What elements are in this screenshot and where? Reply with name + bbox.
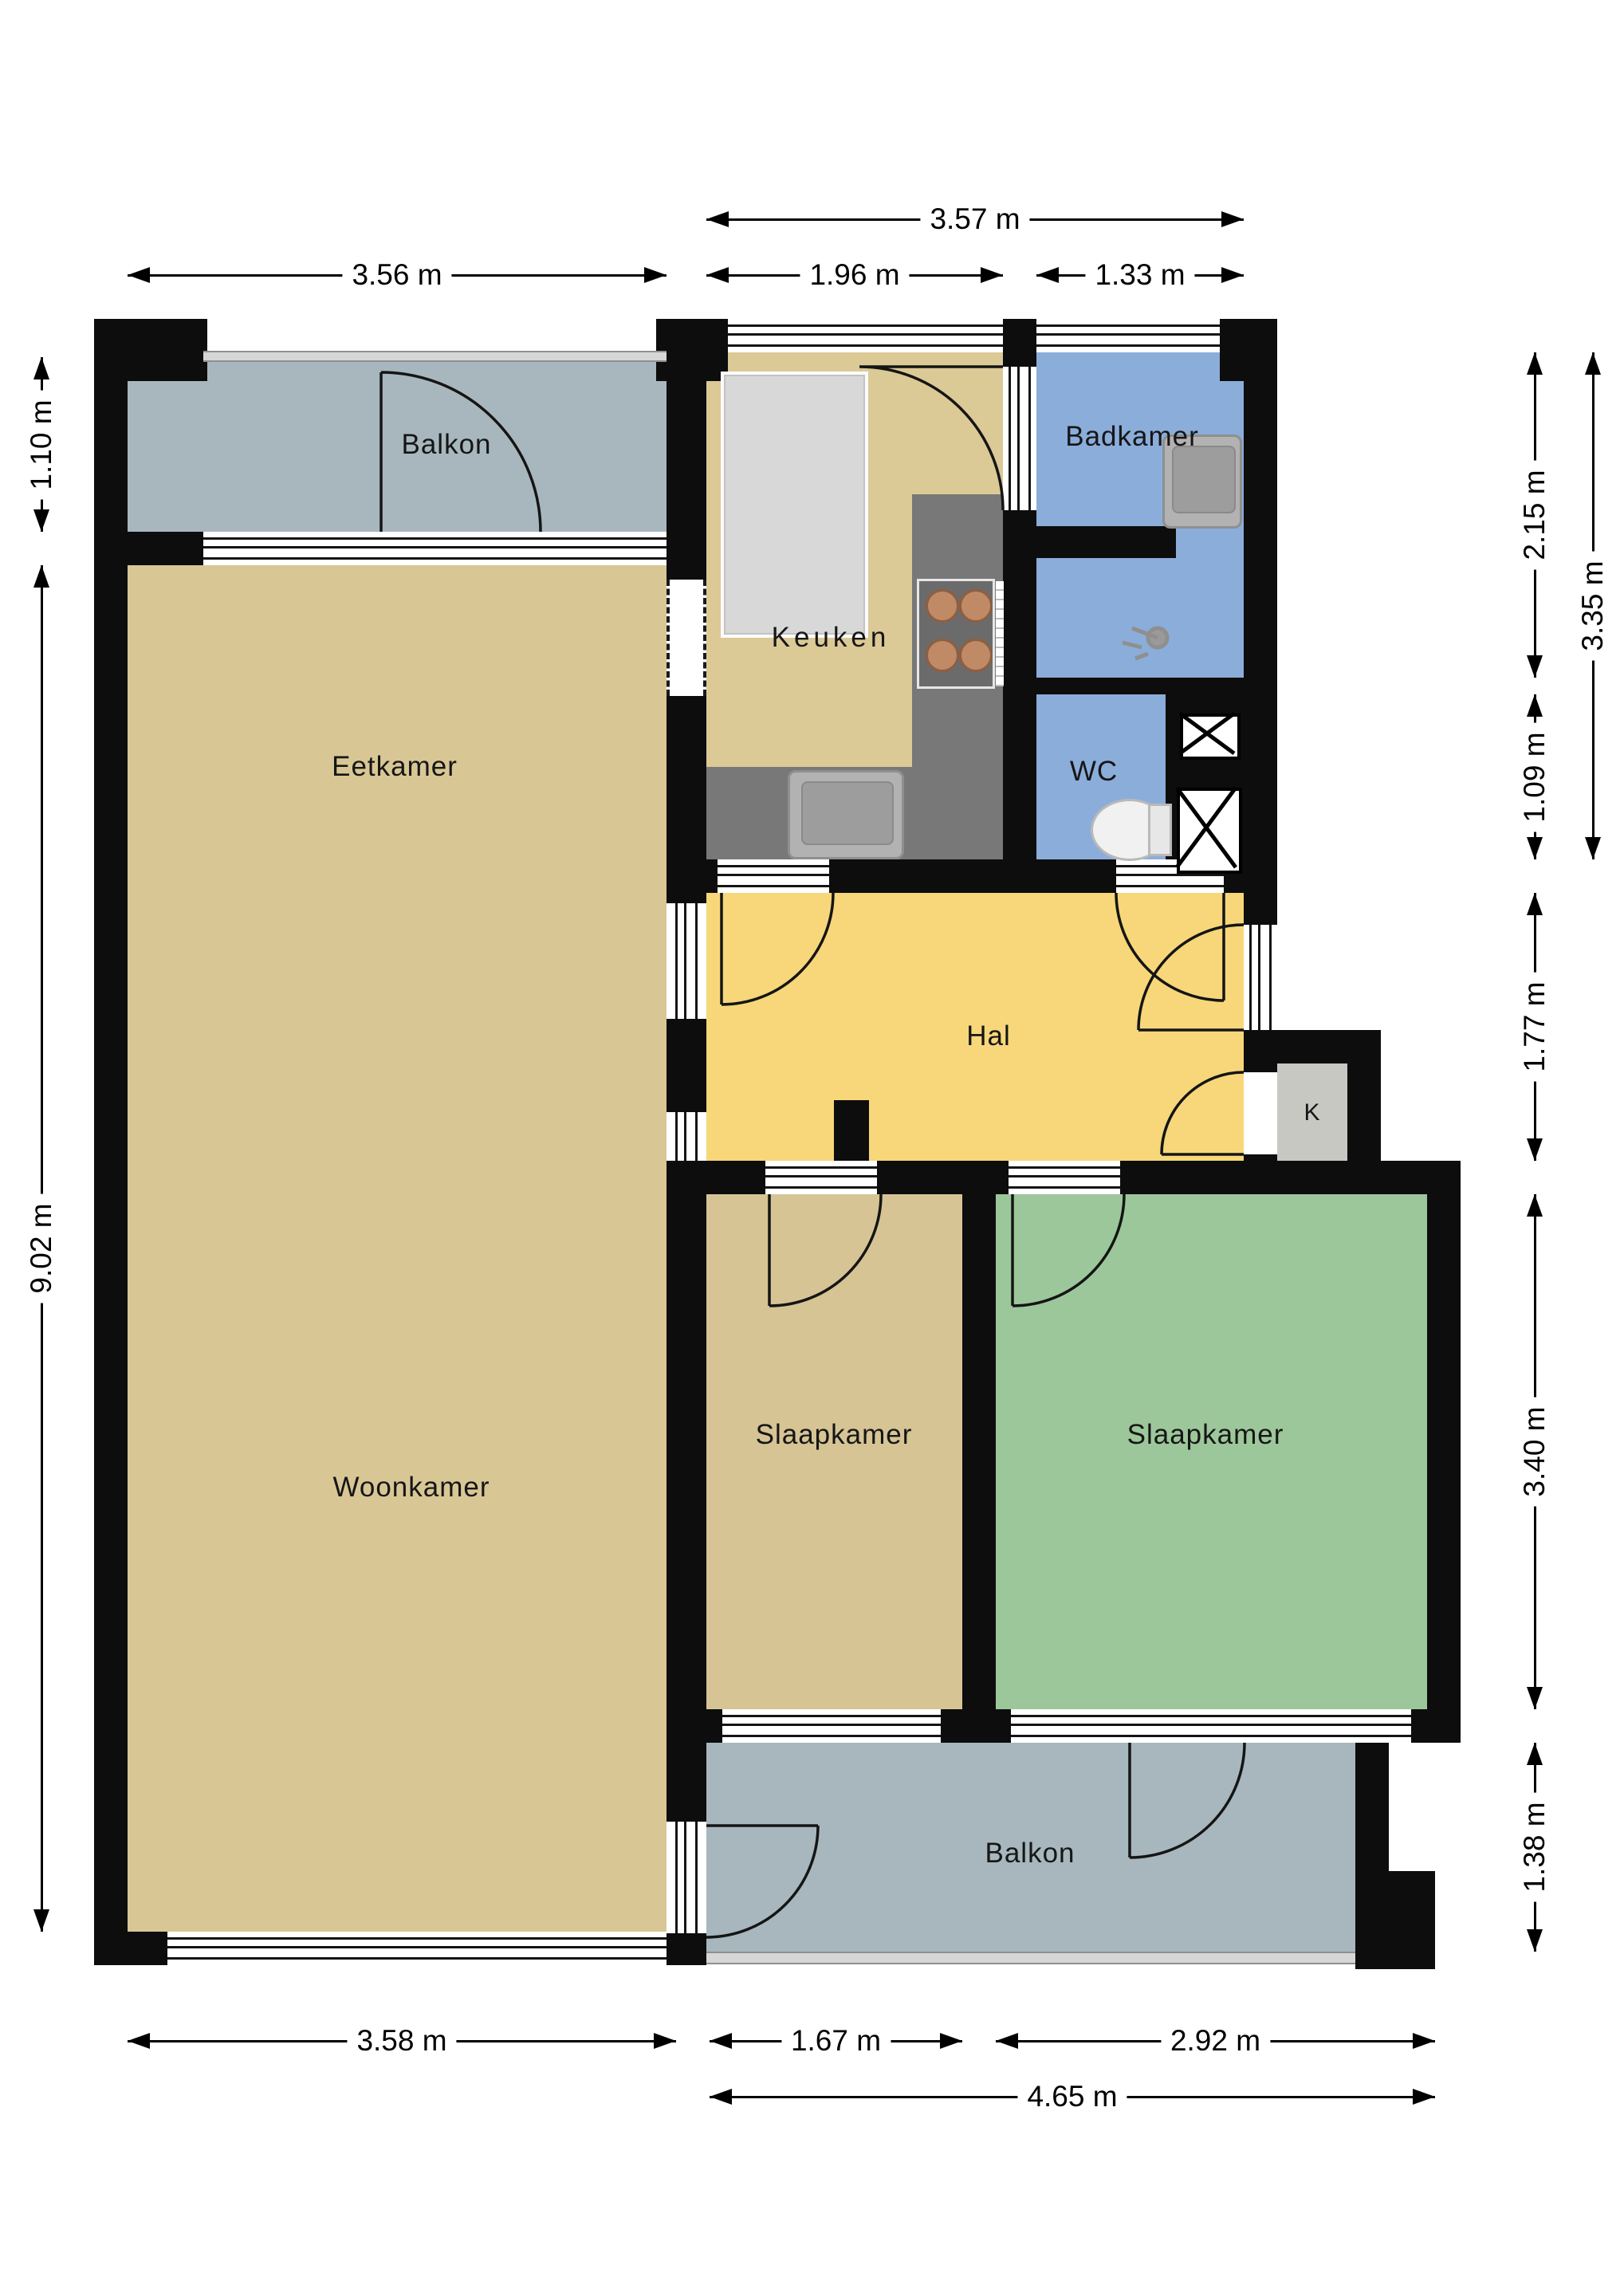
- dimension-right-slaapkamer: 3.40 m: [1520, 1194, 1549, 1709]
- dimension-label: 1.10 m: [23, 390, 60, 499]
- room-label-wc: WC: [1070, 756, 1118, 788]
- dimension-label: 4.65 m: [1017, 2078, 1127, 2115]
- room-label-balkon-top: Balkon: [401, 429, 491, 461]
- dimension-top-left: 3.56 m: [128, 261, 667, 289]
- dimension-label: 1.67 m: [781, 2023, 891, 2059]
- room-label-kast: K: [1304, 1099, 1320, 1126]
- room-label-woonkamer: Woonkamer: [332, 1472, 490, 1504]
- dimension-top-badkamer: 1.33 m: [1036, 261, 1244, 289]
- door-swing-overlay: [0, 0, 1624, 2296]
- dimension-bottom-slaapkamer2: 2.92 m: [996, 2027, 1435, 2055]
- dimension-right-total-top: 3.35 m: [1579, 352, 1607, 859]
- dimension-label: 3.35 m: [1575, 551, 1611, 660]
- door-arc-icon: [722, 893, 833, 1005]
- room-label-badkamer: Badkamer: [1065, 421, 1199, 453]
- shower-icon: [1123, 628, 1167, 659]
- dimension-label: 1.77 m: [1516, 972, 1553, 1081]
- dimension-left-balkon: 1.10 m: [27, 357, 56, 532]
- dimension-label: 3.57 m: [920, 201, 1029, 238]
- room-label-slaapkamer-2: Slaapkamer: [1127, 1419, 1284, 1451]
- dimension-bottom-woonkamer: 3.58 m: [128, 2027, 676, 2055]
- dimension-right-badkamer: 2.15 m: [1520, 352, 1549, 678]
- dimension-right-balkon: 1.38 m: [1520, 1743, 1549, 1952]
- dimension-left-main: 9.02 m: [27, 565, 56, 1932]
- door-arc-icon: [1138, 925, 1244, 1030]
- shaft-x-lines: [1180, 714, 1234, 753]
- floorplan: Balkon Eetkamer Keuken Badkamer WC Hal K…: [0, 0, 1624, 2296]
- dimension-label: 1.09 m: [1516, 722, 1553, 832]
- dimension-bottom-total: 4.65 m: [710, 2082, 1435, 2111]
- dimension-label: 3.40 m: [1516, 1397, 1553, 1506]
- dimension-right-hal: 1.77 m: [1520, 893, 1549, 1161]
- door-arc-icon: [1130, 1743, 1245, 1858]
- dimension-label: 1.96 m: [800, 257, 909, 293]
- room-label-keuken: Keuken: [772, 622, 891, 654]
- dimension-label: 2.92 m: [1161, 2023, 1270, 2059]
- dimension-top-total: 3.57 m: [706, 205, 1244, 234]
- door-arc-icon: [1162, 1072, 1244, 1154]
- dimension-label: 1.38 m: [1516, 1792, 1553, 1901]
- room-label-balkon-bottom: Balkon: [985, 1838, 1075, 1869]
- dimension-label: 9.02 m: [23, 1193, 60, 1303]
- dimension-label: 3.56 m: [342, 257, 451, 293]
- door-arc-icon: [859, 367, 1003, 510]
- dimension-top-keuken: 1.96 m: [706, 261, 1003, 289]
- door-arc-icon: [1116, 893, 1224, 1001]
- dimension-right-wc: 1.09 m: [1520, 694, 1549, 859]
- door-arc-icon: [1013, 1194, 1124, 1306]
- dimension-bottom-slaapkamer1: 1.67 m: [710, 2027, 962, 2055]
- room-label-slaapkamer-1: Slaapkamer: [756, 1419, 913, 1451]
- dimension-label: 2.15 m: [1516, 460, 1553, 569]
- dimension-label: 1.33 m: [1085, 257, 1194, 293]
- room-label-eetkamer: Eetkamer: [332, 751, 458, 783]
- dimension-label: 3.58 m: [347, 2023, 456, 2059]
- door-arc-icon: [769, 1194, 881, 1306]
- door-arc-icon: [706, 1826, 818, 1937]
- shaft-x-lines: [1177, 788, 1236, 867]
- room-label-hal: Hal: [966, 1020, 1011, 1052]
